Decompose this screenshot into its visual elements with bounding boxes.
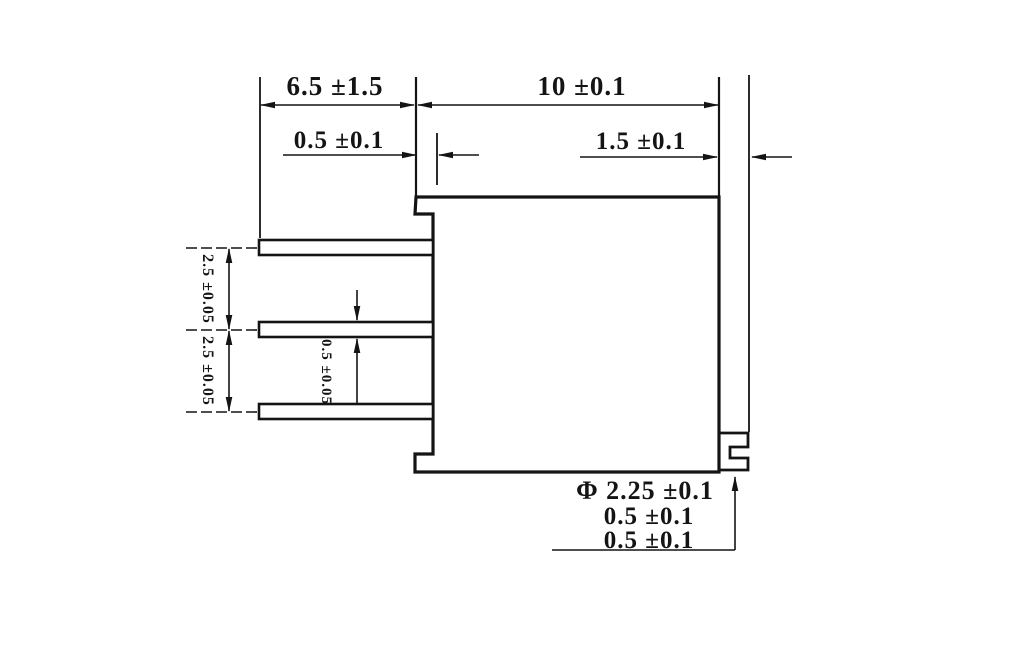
drawing-canvas: 6.5 ±1.5 10 ±0.1 0.5 ±0.1 1.5 ±0.1 2.5 ±… <box>0 0 1019 657</box>
dim-text-lip-width: 0.5 ±0.1 <box>294 127 384 154</box>
terminal-pin-middle <box>259 322 433 337</box>
terminal-pin-bottom <box>259 404 433 419</box>
dim-text-rotor-offset: 1.5 ±0.1 <box>596 128 686 155</box>
dim-text-pin-length: 6.5 ±1.5 <box>286 71 383 101</box>
callout-text-slot-width: 0.5 ±0.1 <box>604 503 694 530</box>
component-body-outline <box>415 197 719 472</box>
dim-text-body-width: 10 ±0.1 <box>537 71 626 101</box>
dim-text-pitch-upper: 2.5 ±0.05 <box>199 254 216 324</box>
terminal-pin-top <box>259 240 433 255</box>
callout-text-slot-depth: 0.5 ±0.1 <box>604 527 694 554</box>
engineering-drawing: 6.5 ±1.5 10 ±0.1 0.5 ±0.1 1.5 ±0.1 2.5 ±… <box>0 0 1019 657</box>
callout-text-slot-diameter: Φ 2.25 ±0.1 <box>576 476 714 505</box>
dim-text-pitch-lower: 2.5 ±0.05 <box>199 336 216 406</box>
dim-text-pin-thickness: 0.5 ±0.05 <box>318 339 334 405</box>
rotor-slot-feature <box>719 433 748 470</box>
